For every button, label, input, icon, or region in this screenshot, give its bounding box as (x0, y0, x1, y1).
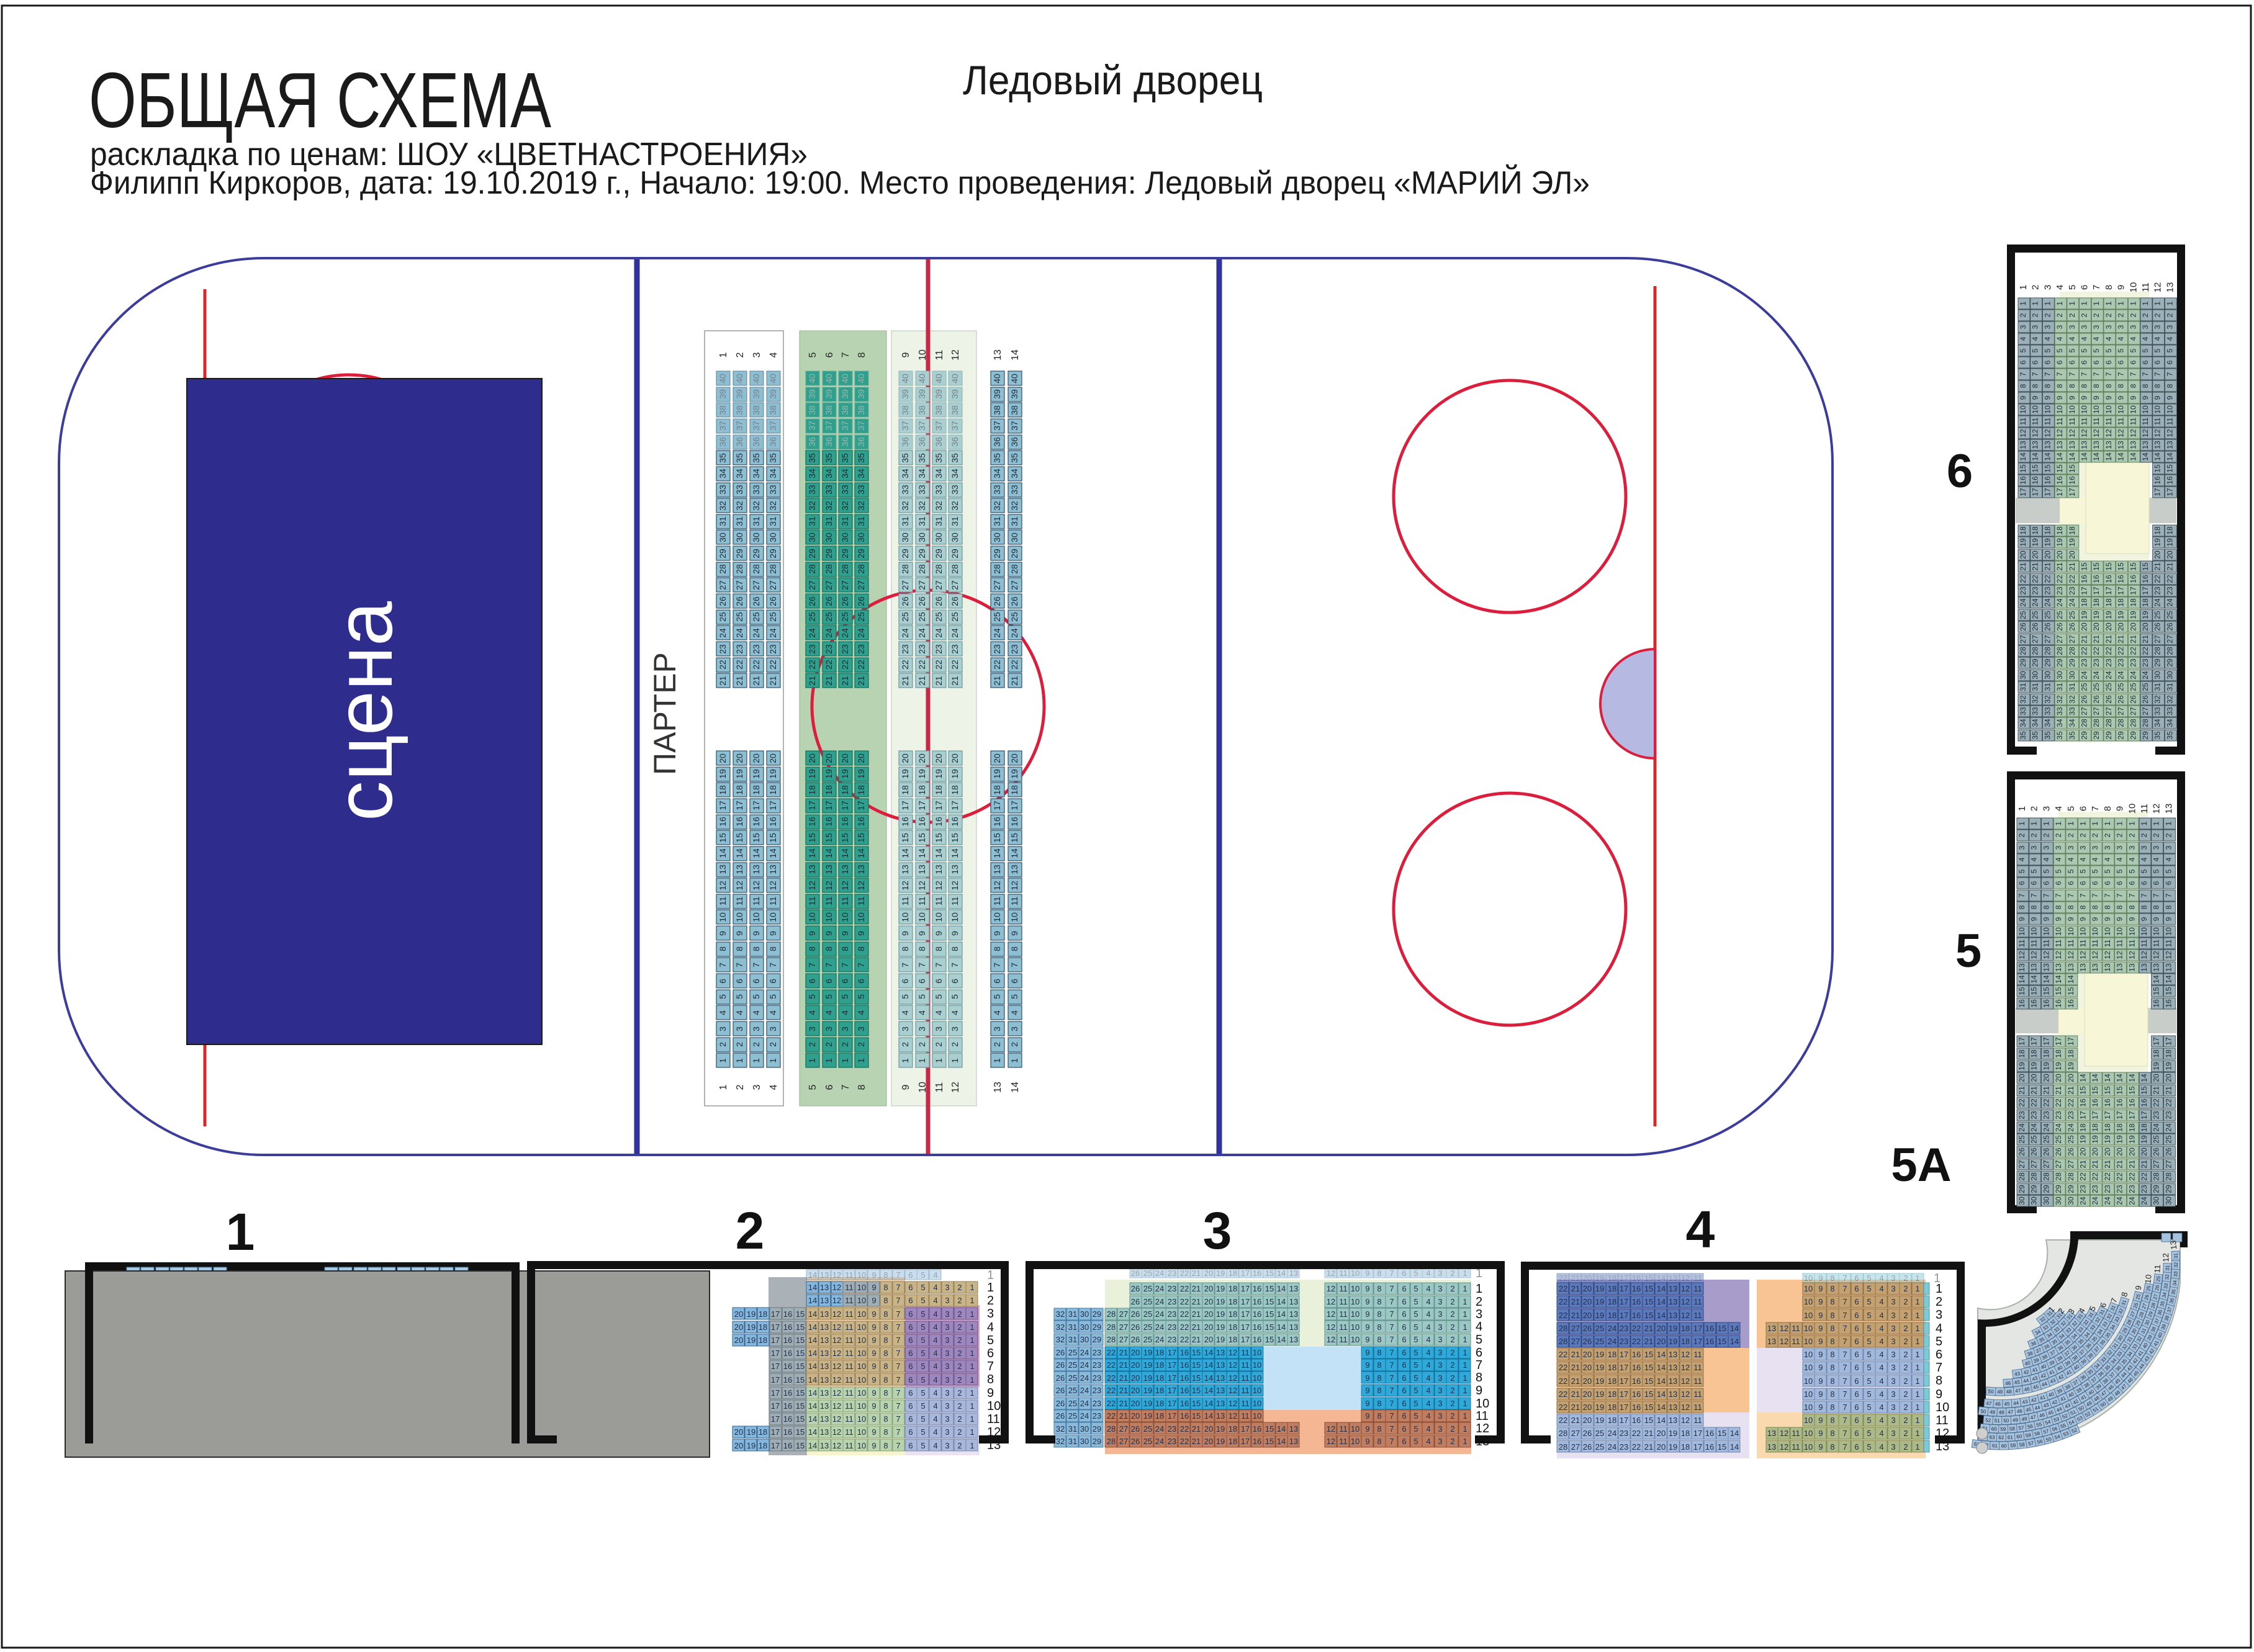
svg-text:1: 1 (718, 1058, 728, 1063)
svg-text:20: 20 (2092, 622, 2101, 631)
svg-text:3: 3 (718, 1026, 728, 1031)
svg-text:8: 8 (2054, 905, 2063, 909)
svg-text:30: 30 (992, 532, 1002, 542)
svg-text:23: 23 (2165, 586, 2174, 595)
svg-text:14: 14 (808, 1270, 817, 1280)
svg-text:10: 10 (1351, 1284, 1359, 1293)
svg-text:27: 27 (2030, 1160, 2039, 1169)
svg-text:7: 7 (2055, 372, 2064, 376)
svg-text:7: 7 (751, 963, 761, 967)
svg-text:3: 3 (751, 1026, 761, 1031)
svg-text:20: 20 (2117, 622, 2126, 631)
svg-text:25: 25 (2042, 1135, 2050, 1144)
svg-text:9: 9 (872, 1401, 876, 1411)
svg-text:13: 13 (1216, 1386, 1225, 1395)
svg-text:16: 16 (1632, 1284, 1641, 1293)
svg-text:5: 5 (2080, 348, 2089, 352)
svg-text:15: 15 (2091, 1086, 2099, 1095)
svg-text:21: 21 (1119, 1399, 1128, 1408)
svg-text:21: 21 (1644, 1429, 1653, 1438)
svg-text:10: 10 (2092, 405, 2101, 414)
svg-text:21: 21 (2153, 562, 2162, 571)
svg-text:20: 20 (1204, 1309, 1213, 1319)
svg-text:11: 11 (807, 897, 817, 906)
svg-text:38: 38 (992, 405, 1002, 415)
svg-text:23: 23 (2164, 1111, 2173, 1120)
svg-text:24: 24 (2103, 1196, 2112, 1205)
svg-text:2: 2 (957, 1375, 962, 1385)
svg-text:7: 7 (2103, 893, 2112, 897)
svg-text:21: 21 (1571, 1284, 1580, 1293)
svg-text:18: 18 (1009, 785, 1019, 795)
svg-text:24: 24 (856, 628, 866, 638)
svg-text:18: 18 (2080, 598, 2089, 607)
svg-text:14: 14 (900, 848, 910, 858)
svg-text:32: 32 (1056, 1437, 1065, 1446)
svg-text:11: 11 (992, 897, 1002, 906)
svg-text:6: 6 (1009, 979, 1019, 984)
svg-text:14: 14 (950, 848, 960, 858)
svg-text:29: 29 (2068, 658, 2076, 667)
svg-text:21: 21 (1644, 1442, 1653, 1452)
svg-text:10: 10 (1804, 1350, 1813, 1359)
svg-text:9: 9 (751, 931, 761, 936)
svg-text:10: 10 (857, 1388, 866, 1398)
svg-text:31: 31 (1068, 1309, 1077, 1319)
svg-text:15: 15 (2140, 1086, 2148, 1095)
svg-text:12: 12 (1228, 1386, 1237, 1395)
svg-text:16: 16 (783, 1336, 792, 1345)
svg-text:8: 8 (950, 946, 960, 951)
svg-text:10: 10 (2043, 405, 2052, 414)
svg-text:22: 22 (1559, 1403, 1567, 1412)
svg-text:34: 34 (2019, 719, 2027, 727)
svg-text:22: 22 (1632, 1442, 1641, 1452)
svg-text:34: 34 (718, 469, 728, 478)
svg-text:8: 8 (883, 1441, 888, 1450)
svg-text:29: 29 (768, 549, 778, 559)
svg-text:29: 29 (856, 549, 866, 559)
svg-text:2: 2 (957, 1322, 962, 1332)
svg-text:9: 9 (2091, 917, 2099, 921)
svg-text:3: 3 (1891, 1273, 1895, 1283)
svg-text:20: 20 (2055, 550, 2064, 559)
svg-text:29: 29 (2080, 731, 2089, 740)
svg-text:26: 26 (2141, 695, 2150, 704)
svg-text:3: 3 (752, 352, 762, 357)
svg-text:8: 8 (883, 1414, 888, 1424)
svg-text:2: 2 (1450, 1399, 1454, 1408)
svg-text:18: 18 (824, 785, 834, 795)
svg-text:11: 11 (1693, 1273, 1702, 1283)
svg-text:26: 26 (2043, 622, 2052, 631)
svg-text:29: 29 (2104, 731, 2113, 740)
svg-text:15: 15 (2164, 987, 2173, 995)
svg-text:14: 14 (808, 1388, 817, 1398)
svg-text:18: 18 (2092, 598, 2101, 607)
svg-text:5: 5 (921, 1441, 925, 1450)
svg-text:21: 21 (2141, 635, 2150, 644)
svg-text:12: 12 (832, 1336, 841, 1345)
svg-text:10: 10 (917, 912, 927, 922)
svg-text:2: 2 (2042, 833, 2050, 837)
svg-text:13: 13 (2031, 441, 2040, 449)
svg-text:23: 23 (807, 644, 817, 654)
svg-text:18: 18 (2140, 1123, 2148, 1132)
svg-text:32: 32 (856, 501, 866, 511)
svg-text:12: 12 (992, 881, 1002, 891)
svg-text:13: 13 (2017, 963, 2026, 972)
svg-text:7: 7 (1476, 1358, 1482, 1372)
svg-text:22: 22 (768, 660, 778, 670)
svg-text:2: 2 (734, 1042, 744, 1047)
svg-text:18: 18 (2164, 1049, 2173, 1058)
svg-text:14: 14 (2164, 975, 2173, 984)
svg-text:31: 31 (856, 516, 866, 526)
svg-text:5: 5 (921, 1375, 925, 1385)
svg-text:17: 17 (771, 1375, 780, 1385)
svg-text:19: 19 (1009, 769, 1019, 779)
svg-text:1: 1 (768, 1058, 778, 1063)
svg-text:33: 33 (824, 485, 834, 495)
svg-text:1: 1 (1915, 1273, 1919, 1283)
svg-text:22: 22 (2017, 1098, 2026, 1107)
svg-text:25: 25 (2152, 1135, 2161, 1144)
svg-text:17: 17 (2103, 1111, 2112, 1120)
svg-text:29: 29 (824, 549, 834, 559)
svg-text:20: 20 (1204, 1284, 1213, 1293)
svg-text:14: 14 (1204, 1399, 1213, 1408)
svg-text:12: 12 (1681, 1273, 1690, 1283)
svg-text:17: 17 (840, 801, 850, 810)
svg-text:17: 17 (2153, 488, 2162, 496)
svg-text:6: 6 (718, 979, 728, 984)
svg-text:13: 13 (1289, 1322, 1298, 1332)
svg-text:23: 23 (1168, 1297, 1176, 1306)
svg-text:3: 3 (2080, 325, 2089, 329)
svg-text:3: 3 (992, 1026, 1002, 1031)
svg-text:25: 25 (840, 612, 850, 622)
svg-text:24: 24 (1155, 1424, 1164, 1434)
svg-text:3: 3 (2031, 325, 2040, 329)
svg-text:5: 5 (718, 994, 728, 999)
svg-text:7: 7 (2079, 893, 2088, 897)
svg-text:35: 35 (934, 453, 944, 463)
svg-text:4: 4 (840, 1010, 850, 1015)
svg-text:15: 15 (2042, 987, 2050, 995)
svg-text:26: 26 (840, 596, 850, 606)
svg-text:6: 6 (2031, 360, 2040, 364)
svg-text:16: 16 (807, 817, 817, 827)
svg-text:8: 8 (883, 1322, 888, 1332)
svg-text:22: 22 (1180, 1424, 1189, 1434)
svg-text:14: 14 (1204, 1386, 1213, 1395)
svg-text:3: 3 (2092, 325, 2101, 329)
svg-text:21: 21 (2127, 1160, 2136, 1169)
svg-text:25: 25 (1143, 1284, 1152, 1293)
svg-text:37: 37 (900, 421, 910, 431)
svg-text:22: 22 (2031, 575, 2040, 583)
svg-text:40: 40 (950, 374, 960, 384)
svg-text:8: 8 (883, 1336, 888, 1345)
svg-text:5: 5 (808, 352, 818, 357)
svg-text:1: 1 (970, 1388, 974, 1398)
svg-text:2: 2 (957, 1296, 962, 1305)
svg-text:32: 32 (2031, 695, 2040, 704)
svg-text:12: 12 (1327, 1284, 1335, 1293)
svg-text:11: 11 (824, 897, 834, 906)
svg-text:21: 21 (1192, 1335, 1201, 1344)
svg-text:Филипп Киркоров, дата: 19.10.2: Филипп Киркоров, дата: 19.10.2019 г., На… (90, 164, 1590, 201)
svg-text:16: 16 (917, 817, 927, 827)
svg-text:19: 19 (2140, 1135, 2148, 1144)
svg-text:29: 29 (2019, 658, 2027, 667)
svg-text:15: 15 (796, 1427, 805, 1437)
svg-text:20: 20 (1583, 1311, 1592, 1320)
svg-text:7: 7 (896, 1296, 900, 1305)
svg-text:15: 15 (950, 833, 960, 843)
svg-text:32: 32 (934, 501, 944, 511)
svg-text:9: 9 (1818, 1337, 1823, 1346)
svg-text:3: 3 (2019, 325, 2027, 329)
svg-text:28: 28 (734, 564, 744, 574)
svg-text:2: 2 (957, 1441, 962, 1450)
svg-text:18: 18 (856, 785, 866, 795)
svg-text:11: 11 (2165, 417, 2174, 425)
svg-text:27: 27 (718, 580, 728, 590)
svg-text:31: 31 (1068, 1424, 1077, 1434)
svg-text:5: 5 (1867, 1337, 1871, 1346)
svg-text:13: 13 (1669, 1297, 1677, 1306)
svg-text:23: 23 (2079, 1185, 2088, 1193)
svg-text:6: 6 (908, 1427, 913, 1437)
svg-text:16: 16 (1253, 1268, 1261, 1278)
svg-text:2: 2 (1903, 1376, 1908, 1386)
svg-text:28: 28 (1559, 1324, 1567, 1333)
svg-text:11: 11 (2140, 939, 2148, 947)
svg-text:17: 17 (734, 801, 744, 810)
svg-text:9: 9 (1818, 1429, 1823, 1438)
svg-text:8: 8 (1009, 946, 1019, 951)
svg-text:19: 19 (768, 769, 778, 779)
svg-text:14: 14 (2091, 1074, 2099, 1082)
svg-text:7: 7 (896, 1309, 900, 1319)
svg-text:21: 21 (1571, 1311, 1580, 1320)
svg-text:22: 22 (2103, 1172, 2112, 1181)
svg-text:15: 15 (2165, 464, 2174, 473)
svg-text:11: 11 (1936, 1414, 1949, 1427)
svg-text:19: 19 (1143, 1399, 1152, 1408)
svg-text:31: 31 (824, 516, 834, 526)
svg-text:26: 26 (1583, 1337, 1592, 1346)
svg-text:15: 15 (1644, 1350, 1653, 1359)
svg-text:40: 40 (734, 374, 744, 384)
svg-text:7: 7 (2091, 285, 2102, 290)
svg-text:32: 32 (2055, 695, 2064, 704)
svg-text:12: 12 (917, 881, 927, 891)
svg-text:11: 11 (1339, 1322, 1348, 1332)
svg-text:17: 17 (1620, 1403, 1628, 1412)
svg-text:14: 14 (856, 848, 866, 858)
svg-text:20: 20 (2103, 1147, 2112, 1156)
svg-text:12: 12 (832, 1401, 841, 1411)
svg-text:1: 1 (970, 1427, 974, 1437)
svg-text:3: 3 (1438, 1360, 1442, 1370)
svg-text:33: 33 (992, 485, 1002, 495)
svg-text:6: 6 (2104, 360, 2113, 364)
svg-text:26: 26 (2104, 695, 2113, 704)
svg-text:13: 13 (820, 1401, 829, 1411)
svg-text:15: 15 (2017, 987, 2026, 995)
svg-text:11: 11 (2030, 939, 2039, 947)
svg-text:23: 23 (2117, 658, 2126, 667)
svg-text:14: 14 (808, 1283, 817, 1292)
svg-text:11: 11 (2055, 417, 2064, 425)
svg-text:4: 4 (933, 1322, 937, 1332)
svg-text:7: 7 (2117, 372, 2126, 376)
svg-text:15: 15 (796, 1349, 805, 1358)
svg-text:1: 1 (1463, 1348, 1467, 1357)
svg-text:10: 10 (2141, 405, 2150, 414)
svg-text:10: 10 (1351, 1309, 1359, 1319)
svg-text:6: 6 (1854, 1389, 1859, 1399)
svg-text:4: 4 (2042, 857, 2050, 861)
svg-text:7: 7 (896, 1336, 900, 1345)
svg-text:14: 14 (2067, 975, 2075, 984)
svg-text:6: 6 (908, 1270, 913, 1280)
svg-text:4: 4 (1879, 1350, 1883, 1359)
svg-text:21: 21 (1192, 1309, 1201, 1319)
svg-text:6: 6 (2116, 881, 2124, 885)
svg-text:20: 20 (2153, 550, 2162, 559)
svg-text:2: 2 (2091, 833, 2099, 837)
svg-text:2: 2 (1936, 1295, 1942, 1309)
svg-text:30: 30 (734, 532, 744, 542)
svg-text:20: 20 (734, 1309, 743, 1319)
svg-text:36: 36 (917, 437, 927, 447)
svg-text:16: 16 (1253, 1309, 1261, 1319)
svg-text:9: 9 (1365, 1268, 1369, 1278)
svg-text:32: 32 (900, 501, 910, 511)
svg-text:1: 1 (970, 1375, 974, 1385)
svg-text:19: 19 (2055, 538, 2064, 547)
svg-text:22: 22 (950, 660, 960, 670)
svg-text:26: 26 (1056, 1411, 1065, 1421)
svg-text:12: 12 (1476, 1422, 1489, 1435)
svg-text:7: 7 (1389, 1284, 1394, 1293)
svg-text:8: 8 (2079, 905, 2088, 909)
svg-text:10: 10 (1804, 1442, 1813, 1452)
svg-text:4: 4 (1426, 1399, 1430, 1408)
svg-text:13: 13 (2116, 963, 2124, 972)
svg-text:15: 15 (856, 833, 866, 843)
svg-text:16: 16 (900, 817, 910, 827)
svg-text:22: 22 (2042, 1098, 2050, 1107)
svg-text:8: 8 (1377, 1411, 1381, 1421)
svg-text:14: 14 (2152, 975, 2161, 984)
svg-text:1: 1 (970, 1414, 974, 1424)
svg-text:15: 15 (751, 833, 761, 843)
svg-text:20: 20 (1009, 753, 1019, 763)
svg-text:4: 4 (2153, 336, 2162, 341)
svg-text:10: 10 (857, 1427, 866, 1437)
svg-text:18: 18 (1228, 1309, 1237, 1319)
svg-text:10: 10 (856, 912, 866, 922)
svg-text:30: 30 (900, 532, 910, 542)
svg-text:16: 16 (934, 817, 944, 827)
svg-text:24: 24 (1608, 1429, 1616, 1438)
svg-text:4: 4 (1686, 1200, 1715, 1259)
svg-text:16: 16 (1180, 1399, 1189, 1408)
svg-text:9: 9 (1009, 931, 1019, 936)
svg-text:11: 11 (1693, 1389, 1702, 1399)
svg-text:18: 18 (718, 785, 728, 795)
svg-text:2: 2 (934, 1042, 944, 1047)
svg-text:22: 22 (2127, 1172, 2136, 1181)
svg-text:20: 20 (734, 1441, 743, 1450)
svg-text:34: 34 (2055, 719, 2064, 727)
svg-text:33: 33 (734, 485, 744, 495)
svg-text:33: 33 (768, 485, 778, 495)
svg-text:2: 2 (2080, 313, 2089, 317)
svg-text:7: 7 (896, 1270, 900, 1280)
svg-text:22: 22 (934, 660, 944, 670)
svg-text:32: 32 (1056, 1309, 1065, 1319)
svg-text:1: 1 (1915, 1429, 1919, 1438)
svg-text:9: 9 (950, 931, 960, 936)
svg-text:27: 27 (950, 580, 960, 590)
svg-text:31: 31 (2043, 683, 2052, 691)
svg-text:36: 36 (934, 437, 944, 447)
svg-text:35: 35 (2068, 731, 2076, 740)
svg-text:6: 6 (2092, 360, 2101, 364)
svg-text:23: 23 (1620, 1429, 1628, 1438)
svg-text:8: 8 (1830, 1337, 1834, 1346)
svg-text:12: 12 (2080, 429, 2089, 438)
svg-text:6: 6 (2141, 360, 2150, 364)
svg-text:20: 20 (1657, 1337, 1666, 1346)
svg-text:4: 4 (2055, 336, 2064, 341)
svg-text:40: 40 (824, 374, 834, 384)
svg-text:11: 11 (1241, 1348, 1250, 1357)
svg-text:17: 17 (2091, 1111, 2099, 1120)
svg-text:30: 30 (1080, 1335, 1089, 1344)
svg-text:16: 16 (1632, 1273, 1641, 1283)
svg-text:5: 5 (921, 1414, 925, 1424)
svg-text:13: 13 (993, 1082, 1003, 1093)
svg-text:21: 21 (2117, 635, 2126, 644)
svg-text:4: 4 (2054, 857, 2063, 861)
svg-text:14: 14 (808, 1375, 817, 1385)
svg-text:2: 2 (2055, 313, 2064, 317)
svg-text:3: 3 (1438, 1297, 1442, 1306)
svg-text:14: 14 (1277, 1309, 1286, 1319)
svg-text:3: 3 (2103, 845, 2112, 850)
svg-text:13: 13 (1216, 1411, 1225, 1421)
svg-text:19: 19 (2091, 1135, 2099, 1144)
svg-text:6: 6 (1854, 1273, 1859, 1283)
svg-text:1: 1 (1915, 1389, 1919, 1399)
svg-text:15: 15 (1265, 1297, 1274, 1306)
svg-text:22: 22 (2030, 1098, 2039, 1107)
svg-text:13: 13 (1669, 1350, 1677, 1359)
svg-text:11: 11 (2103, 939, 2112, 947)
svg-text:22: 22 (2079, 1172, 2088, 1181)
svg-text:37: 37 (807, 421, 817, 431)
svg-text:33: 33 (2153, 707, 2162, 716)
svg-text:18: 18 (2127, 1123, 2136, 1132)
svg-text:16: 16 (1632, 1389, 1641, 1399)
